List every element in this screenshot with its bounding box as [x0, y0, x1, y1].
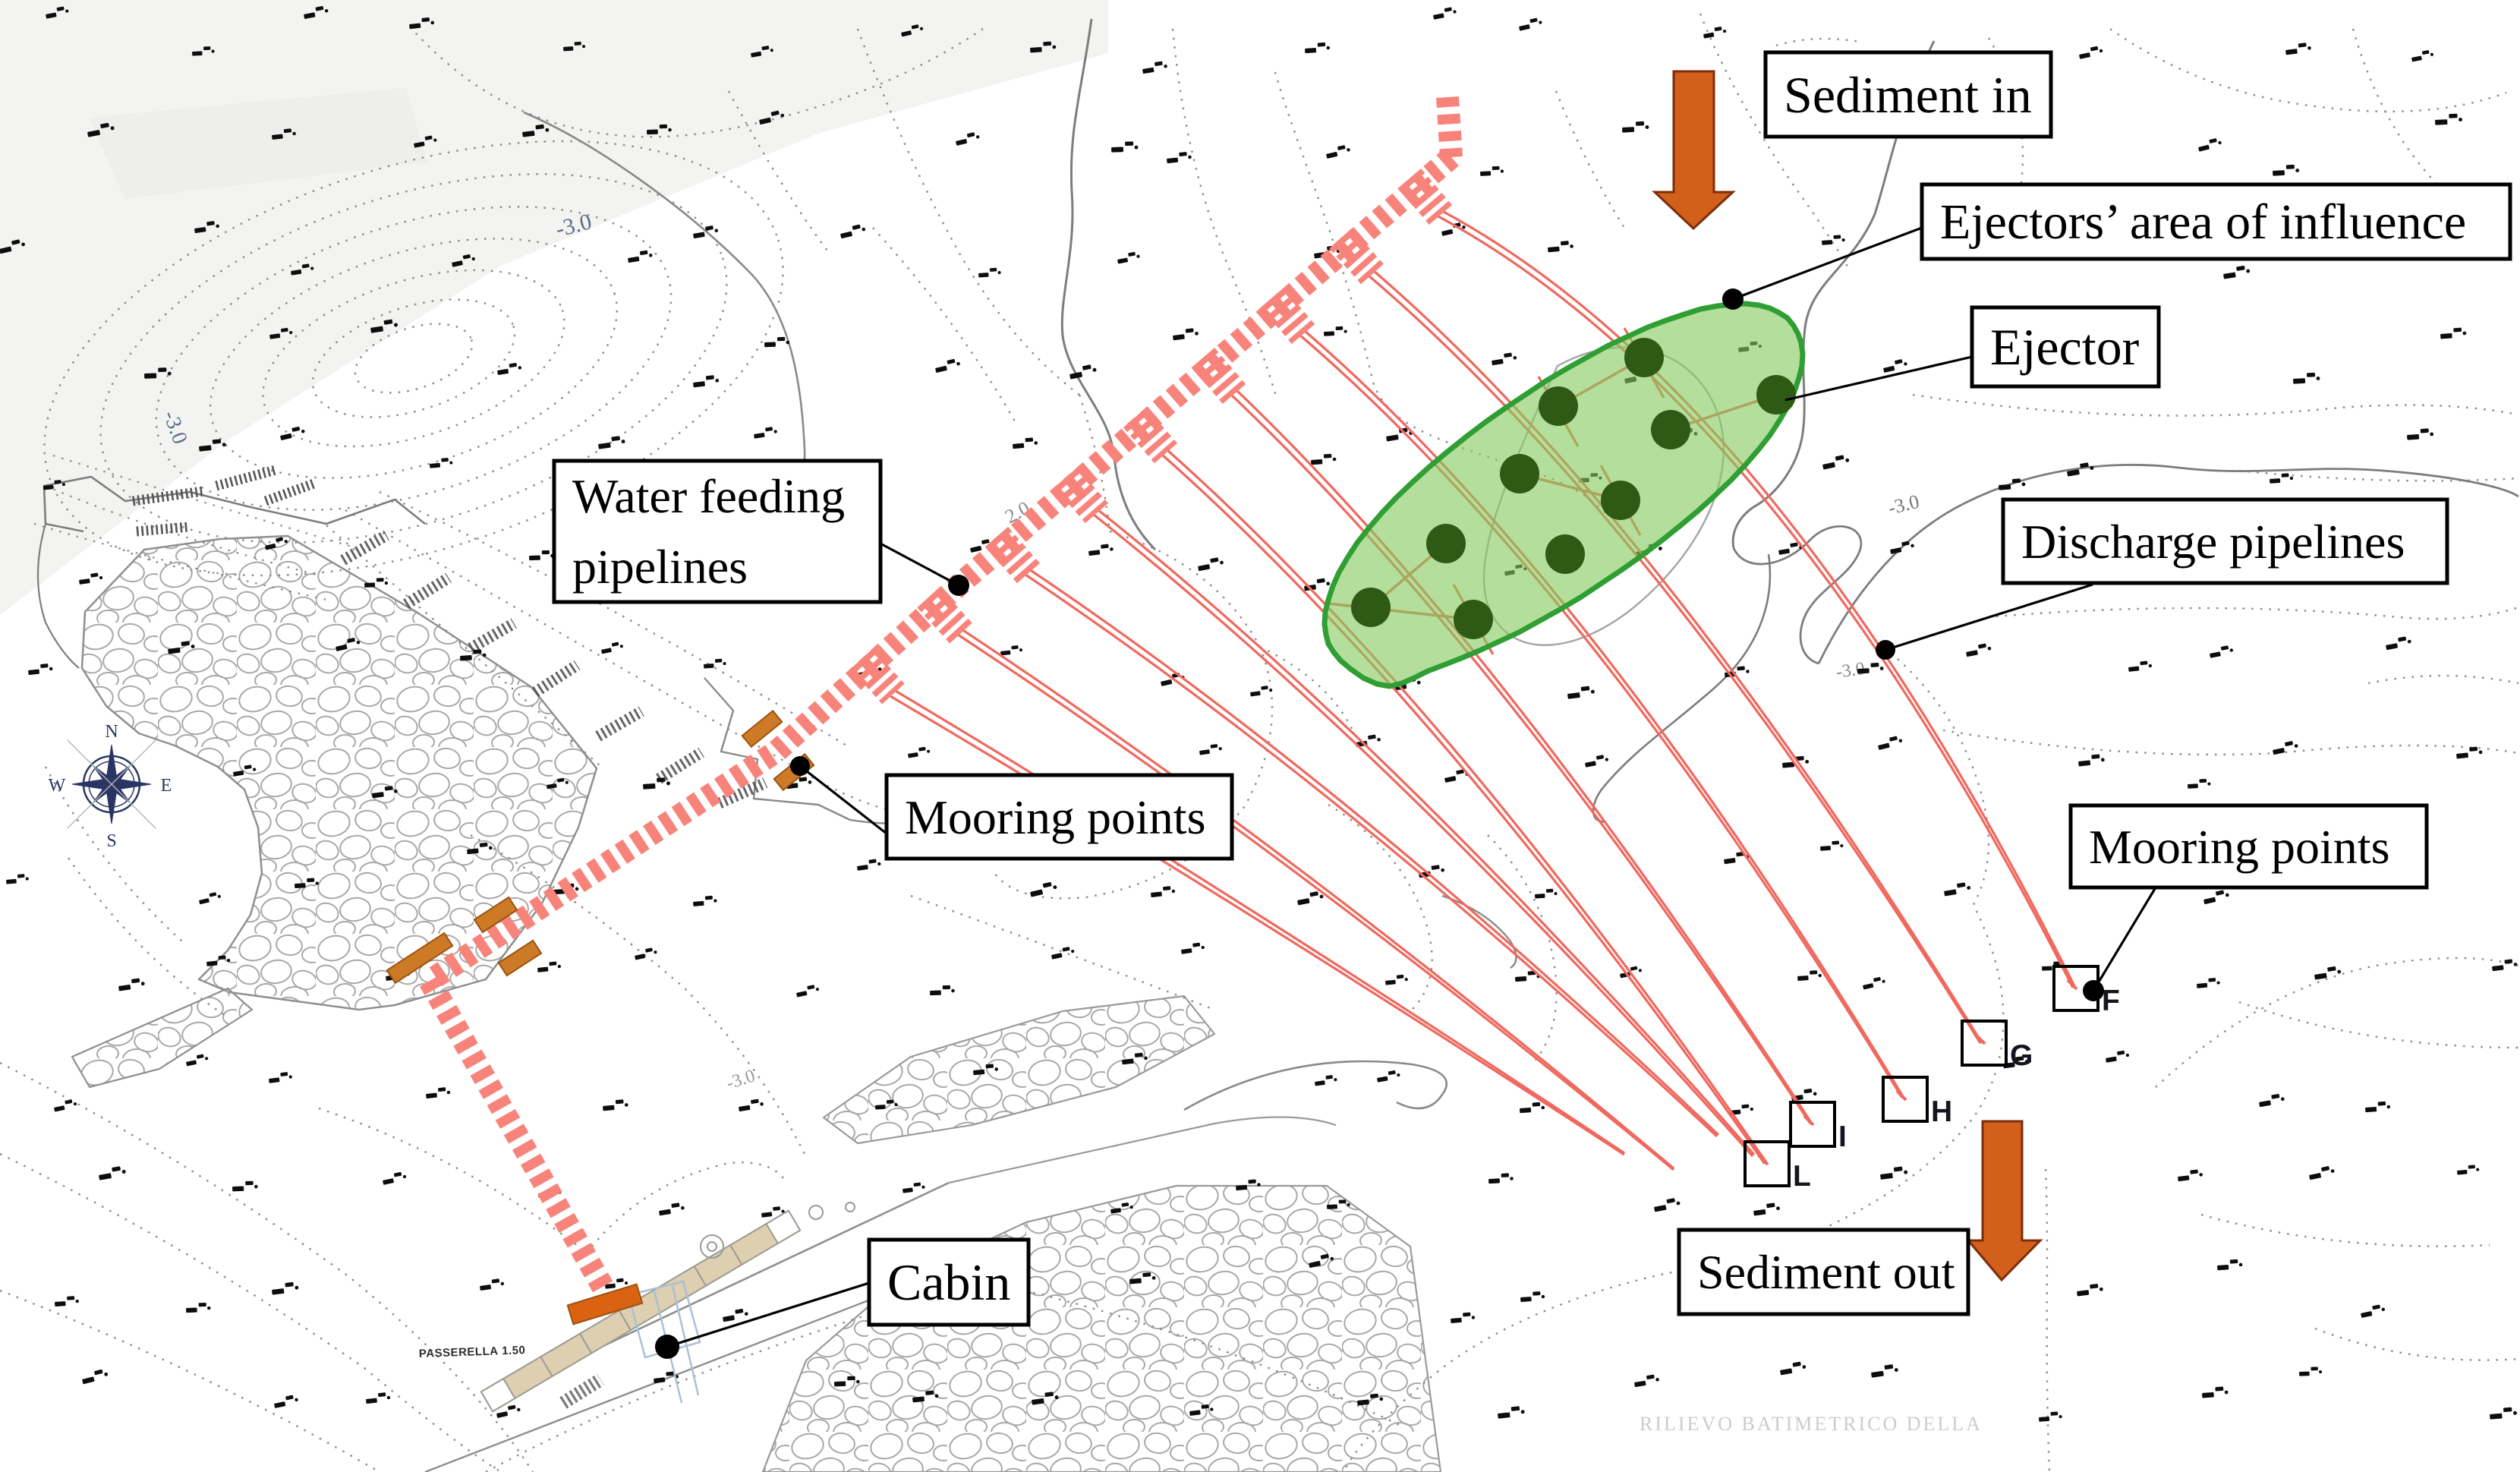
- svg-text:pipelines: pipelines: [572, 540, 748, 594]
- svg-text:E: E: [161, 776, 172, 796]
- svg-text:Cabin: Cabin: [887, 1253, 1010, 1311]
- svg-text:Sediment out: Sediment out: [1697, 1245, 1955, 1299]
- svg-text:G: G: [2010, 1039, 2033, 1072]
- svg-text:Water feeding: Water feeding: [572, 469, 845, 523]
- svg-text:Ejector: Ejector: [1990, 318, 2140, 376]
- svg-text:N: N: [105, 722, 118, 742]
- svg-text:W: W: [49, 776, 66, 796]
- svg-text:Ejectors’ area of influence: Ejectors’ area of influence: [1940, 194, 2466, 250]
- svg-text:RILIEVO BATIMETRICO DELLA: RILIEVO BATIMETRICO DELLA: [1640, 1413, 1983, 1435]
- svg-text:F: F: [2102, 985, 2120, 1017]
- svg-text:Mooring points: Mooring points: [905, 790, 1205, 844]
- svg-text:I: I: [1838, 1121, 1847, 1153]
- svg-text:Discharge pipelines: Discharge pipelines: [2021, 515, 2405, 569]
- svg-text:S: S: [106, 831, 116, 851]
- svg-text:Mooring points: Mooring points: [2089, 820, 2389, 874]
- svg-text:Sediment in: Sediment in: [1784, 66, 2032, 124]
- svg-text:L: L: [1793, 1160, 1811, 1193]
- svg-text:H: H: [1931, 1095, 1952, 1128]
